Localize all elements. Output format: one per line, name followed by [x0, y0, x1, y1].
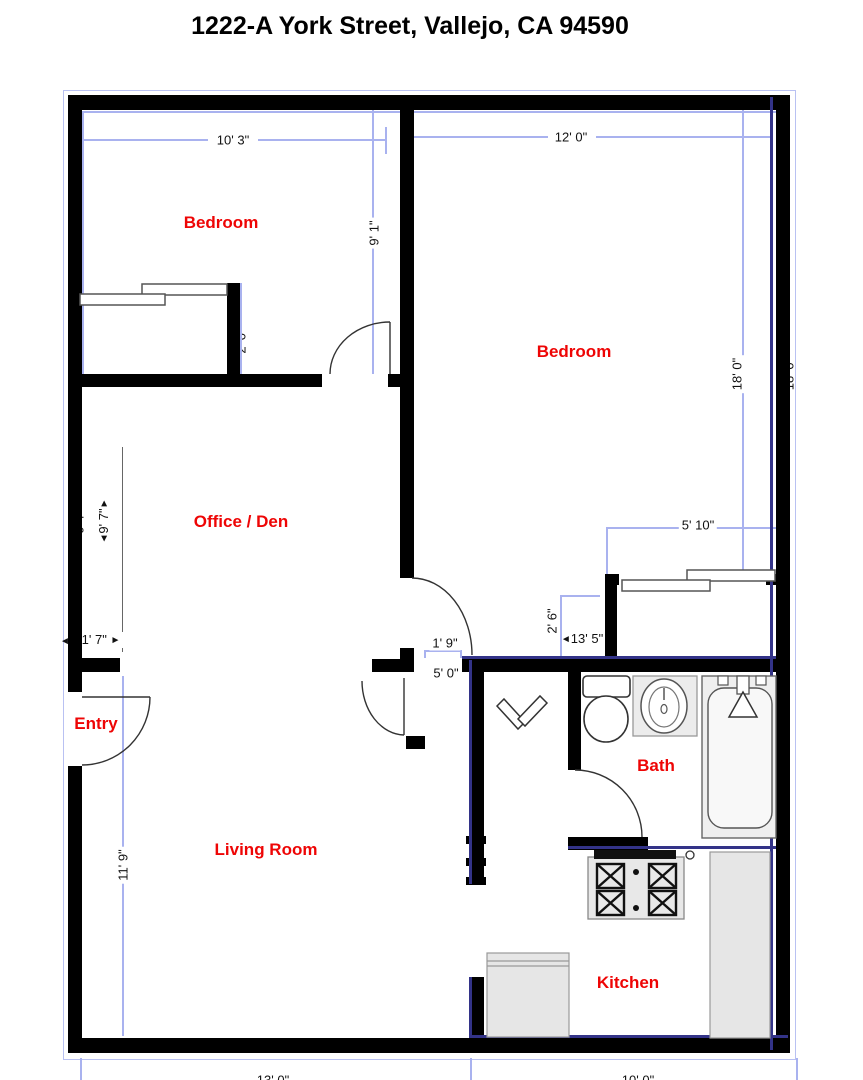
- dim-tick-bottom: [796, 1058, 798, 1080]
- wall-exterior-top: [68, 95, 790, 110]
- exterior-outline: [63, 90, 796, 1060]
- dim-tick: [606, 527, 608, 574]
- wall-closet1: [227, 283, 240, 375]
- dim-line-closet1: [240, 283, 242, 374]
- dim-arrow-right: ►: [99, 499, 110, 509]
- room-label-entry: Entry: [74, 714, 117, 734]
- dim-tick-bottom: [80, 1058, 82, 1080]
- wall-exterior-right: [776, 95, 790, 1053]
- dim-bottom-right-width: 10' 0": [619, 1073, 657, 1080]
- wall-hallway-right: [462, 659, 776, 672]
- dim-closet2-width: 5' 10": [679, 518, 717, 533]
- room-label-kitchen: Kitchen: [597, 973, 659, 993]
- inner-face-line-top: [82, 111, 776, 113]
- navy-line-right-wall: [770, 97, 773, 1050]
- navy-line-hall-wall: [462, 656, 776, 659]
- navy-line-bottom-wall: [472, 1035, 788, 1038]
- wall-entry-jog: [72, 658, 120, 672]
- dim-entry-jog: 1' 7" ►: [79, 632, 124, 648]
- dim-tick: [385, 127, 387, 154]
- wall-exterior-left-lower: [68, 766, 82, 1053]
- wall-exterior-left-upper: [68, 95, 82, 692]
- navy-line-divider-upper: [469, 660, 472, 884]
- wall-living-closet-stub: [406, 736, 425, 749]
- dim-arrow-left: ◄: [561, 634, 571, 645]
- dim-bedroom1-width: 10' 3": [214, 133, 252, 148]
- dim-bedroom2-depth: 18' 0": [730, 355, 745, 393]
- dim-bracket-2-6-v: [560, 595, 562, 658]
- dim-office-width: ◄9' 7"►: [96, 496, 112, 547]
- wall-kitchen-divider-lower: [472, 977, 484, 1038]
- dim-line-10-3-left: [76, 139, 208, 141]
- room-label-office: Office / Den: [194, 512, 288, 532]
- plan-title: 1222-A York Street, Vallejo, CA 94590: [0, 12, 820, 41]
- wall-hallway-left: [372, 659, 414, 672]
- dim-arrow-left: ◄: [99, 534, 110, 544]
- wall-bath-left: [568, 672, 581, 770]
- dim-bedroom1-depth: 9' 1": [367, 217, 382, 248]
- dim-living-depth: 11' 9": [116, 846, 131, 883]
- wall-exterior-bottom: [68, 1038, 790, 1053]
- navy-line-divider-lower: [469, 977, 472, 1038]
- dim-arrow-right: ►: [110, 635, 120, 646]
- room-label-living: Living Room: [215, 840, 318, 860]
- wall-closet2-post-left: [605, 574, 619, 585]
- room-label-bedroom1: Bedroom: [184, 213, 259, 233]
- dim-line-18-0: [742, 97, 744, 574]
- wall-bedroom1-door-jamb: [388, 374, 402, 387]
- inner-face-line-left: [82, 111, 84, 374]
- dim-line-10-3-right: [258, 139, 386, 141]
- room-label-bedroom2: Bedroom: [537, 342, 612, 362]
- wall-kitchen-divider-upper: [472, 660, 484, 884]
- dim-bottom-left-width: 13' 0": [254, 1073, 292, 1080]
- navy-line-kitchen-top: [568, 846, 776, 849]
- wall-closet2: [605, 574, 617, 660]
- dim-bracket-tick: [424, 650, 426, 658]
- floor-plan: 1222-A York Street, Vallejo, CA 94590: [0, 0, 863, 1080]
- dim-ext-line-office: [122, 447, 123, 652]
- dim-tick-bottom: [470, 1058, 472, 1080]
- dim-bedroom2-width: 12' 0": [552, 130, 590, 145]
- wall-bedroom-divider: [400, 110, 414, 578]
- wall-bedroom1-south: [82, 374, 322, 387]
- dim-line-12-0-left: [406, 136, 548, 138]
- dim-hall-door: 1' 9": [429, 636, 460, 651]
- room-label-bath: Bath: [637, 756, 675, 776]
- dim-bracket-2-6: [560, 595, 600, 597]
